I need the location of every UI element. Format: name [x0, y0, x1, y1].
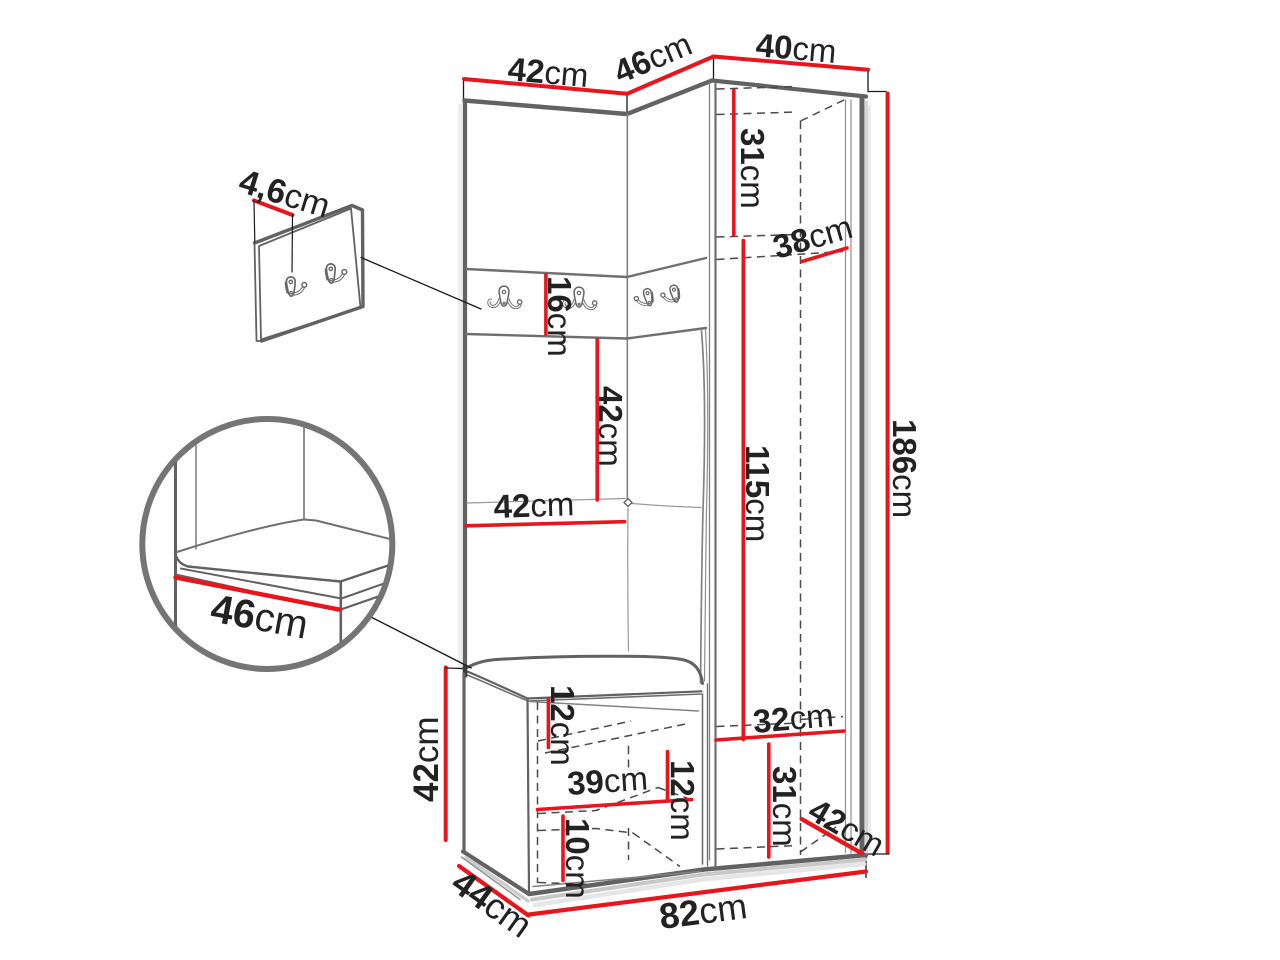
svg-text:115cm: 115cm [739, 445, 776, 542]
svg-text:12cm: 12cm [544, 685, 581, 766]
svg-text:12cm: 12cm [664, 760, 701, 841]
svg-text:31cm: 31cm [734, 128, 771, 209]
svg-text:32cm: 32cm [751, 696, 835, 740]
svg-text:40cm: 40cm [754, 26, 838, 70]
svg-text:42cm: 42cm [592, 386, 629, 467]
svg-text:10cm: 10cm [559, 818, 596, 899]
svg-text:42cm: 42cm [493, 485, 575, 525]
svg-text:16cm: 16cm [541, 276, 578, 357]
svg-text:42cm: 42cm [506, 50, 590, 94]
svg-text:31cm: 31cm [766, 766, 803, 847]
svg-text:39cm: 39cm [566, 759, 649, 802]
svg-text:42cm: 42cm [407, 716, 446, 802]
svg-text:186cm: 186cm [886, 419, 923, 518]
